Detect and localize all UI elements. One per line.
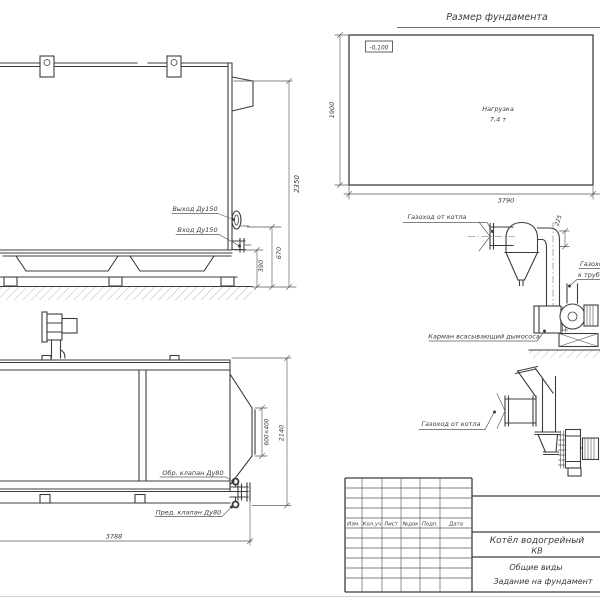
leader-dot — [491, 230, 494, 233]
leader-dot — [493, 411, 496, 414]
burner-mount-plate — [42, 312, 47, 342]
dim-flue-outlet: 600×400 — [265, 418, 271, 445]
leader-dot — [568, 285, 571, 288]
load-label-line2: 7,4 т — [490, 116, 506, 124]
engineering-drawing-sheet: Выход Ду150 Вход Ду150 2350 670 390 Разм… — [0, 0, 600, 600]
skid-tab — [40, 495, 50, 504]
dim-plan-width: 2140 — [278, 425, 286, 442]
foundation-title: Размер фундамента — [446, 12, 548, 23]
elevation-mark: -0,100 — [370, 46, 389, 52]
inlet-label: Вход Ду150 — [177, 226, 217, 234]
leader-dot — [238, 245, 241, 248]
dim-foundation-height: 1900 — [328, 102, 336, 119]
flue-duct-elevation: Газоход от котла 225 Газоход к трубе Кар… — [403, 213, 600, 358]
col-izm: Изм. — [347, 522, 360, 528]
outlet-label: Выход Ду150 — [172, 205, 217, 213]
leader-dot — [543, 330, 546, 333]
lifting-lug-left-hole — [44, 60, 50, 66]
duct-centerlines — [468, 222, 553, 310]
dim-frame-height: 390 — [257, 260, 265, 272]
col-koluch: Кол.уч — [363, 522, 382, 528]
duct-from-boiler-label: Газоход от котла — [421, 420, 480, 428]
safety-valve — [233, 502, 239, 508]
leader-dot — [232, 480, 235, 483]
skid-tab — [42, 356, 51, 361]
duct-break-symbol — [497, 394, 505, 429]
safety-valve-label: Пред. клапан Ду80 — [156, 509, 221, 517]
doc-subject: Задание на фундамент — [493, 577, 592, 586]
outlet-nozzle — [235, 215, 239, 225]
title-block: Изм. Кол.уч Лист №док Подп. Дата Котёл в… — [345, 478, 600, 592]
suction-pocket — [534, 306, 561, 333]
suction-pocket-label: Карман всасывающий дымососа — [428, 333, 540, 341]
skid-tab — [135, 495, 145, 504]
load-label-line1: Нагрузка — [482, 105, 514, 113]
lifting-lug-right-hole — [171, 60, 177, 66]
col-ndok: №док — [402, 522, 420, 528]
boiler-side-view: Выход Ду150 Вход Ду150 2350 670 390 — [0, 56, 301, 300]
fan-support — [568, 468, 581, 476]
col-data: Дата — [448, 522, 463, 528]
flue-duct-plan: Газоход от котла — [419, 367, 599, 477]
frame-foot — [4, 277, 17, 286]
doc-kind: Общие виды — [509, 563, 562, 572]
dim-foundation-width: 3790 — [498, 197, 515, 205]
fan-housing-plan — [566, 430, 581, 469]
burner-motor — [62, 319, 77, 334]
foundation-outline — [349, 35, 593, 185]
fan-hub — [568, 312, 577, 321]
fan-motor — [584, 305, 598, 326]
leader-dot — [232, 218, 235, 221]
title-block-grid — [345, 478, 472, 592]
check-valve-label: Обр. клапан Ду80 — [162, 469, 223, 477]
duct-from-boiler-label: Газоход от котла — [407, 213, 466, 221]
boiler-plan-view: Обр. клапан Ду80 Пред. клапан Ду80 600×4… — [0, 312, 291, 545]
boiler-plan-outline — [0, 360, 255, 503]
ground-hatch — [529, 350, 600, 358]
col-list: Лист — [383, 522, 399, 528]
duct-plan-outline — [505, 367, 560, 455]
foundation-dimension-lines — [335, 33, 600, 200]
frame-foot — [109, 277, 122, 286]
boiler-body-outline — [0, 63, 253, 287]
duct-to-stack-label-line2: к трубе — [578, 271, 600, 279]
doc-name-line2: КВ — [531, 547, 542, 556]
title-block-frame — [345, 478, 600, 592]
burner-body — [47, 314, 62, 340]
dim-plan-length: 3788 — [106, 533, 123, 541]
dim-inlet-height: 670 — [275, 247, 283, 259]
ground-hatch — [0, 287, 252, 300]
dim-duct-offset: 225 — [554, 214, 563, 227]
leader-dot — [230, 506, 233, 509]
skid-tab — [170, 356, 179, 361]
frame-foot — [221, 277, 234, 286]
fan-flange-bolts — [559, 431, 566, 468]
doc-name-line1: Котёл водогрейный — [490, 536, 585, 546]
duct-to-stack-label-line1: Газоход — [580, 260, 600, 268]
dim-total-height: 2350 — [293, 175, 301, 193]
foundation-plan: Размер фундамента -0,100 Нагрузка 7,4 т … — [328, 12, 600, 205]
col-podp: Подп. — [422, 522, 438, 528]
